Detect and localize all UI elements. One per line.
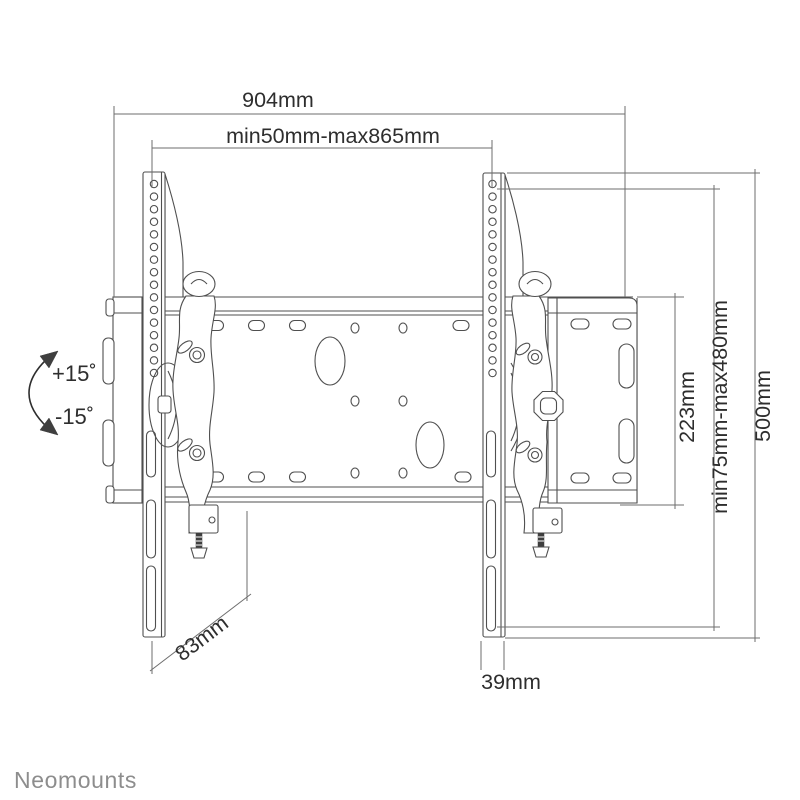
dimension-904mm-label: 904mm xyxy=(242,88,314,112)
technical-drawing: 904mm min50mm-max865mm 223mm min75mm-max… xyxy=(0,0,800,800)
dimension-223mm-label: 223mm xyxy=(675,371,699,443)
left-side-plate xyxy=(103,297,142,503)
plate-oval-hole-lower xyxy=(416,422,444,468)
tilt-arrow-icon xyxy=(29,358,48,428)
left-arm-hook xyxy=(183,272,215,297)
left-arm-foot xyxy=(189,505,218,558)
tilt-angle-indicator: +15˚ -15˚ xyxy=(29,351,97,435)
left-bracket-wing xyxy=(165,174,183,297)
dimension-min50-max865-label: min50mm-max865mm xyxy=(226,124,440,148)
tilt-lock-knob xyxy=(534,392,563,421)
right-arm-hook xyxy=(519,272,551,297)
tilt-down-label: -15˚ xyxy=(55,404,94,429)
brand-logo: Neomounts xyxy=(14,767,137,793)
right-tv-bracket xyxy=(483,173,505,637)
dimension-39mm-label: 39mm xyxy=(481,670,541,694)
right-arm-foot xyxy=(533,508,562,557)
plate-oval-hole-upper xyxy=(315,337,345,385)
dimension-83mm-label: 83mm xyxy=(171,611,233,666)
wall-mount-technical-drawing-page: 904mm min50mm-max865mm 223mm min75mm-max… xyxy=(0,0,800,800)
plate-upper-slots xyxy=(208,321,470,331)
dimension-39mm: 39mm xyxy=(481,641,541,694)
dimension-min50-max865: min50mm-max865mm xyxy=(152,124,492,188)
dimension-500mm-label: 500mm xyxy=(751,370,775,442)
dimension-904mm: 904mm xyxy=(114,88,625,297)
right-adjust-screw xyxy=(538,533,544,547)
plate-lower-slots xyxy=(208,472,472,482)
tilt-up-label: +15˚ xyxy=(52,361,97,386)
dimension-min75-max480-label: min75mm-max480mm xyxy=(708,300,732,514)
plate-holes xyxy=(351,323,407,478)
